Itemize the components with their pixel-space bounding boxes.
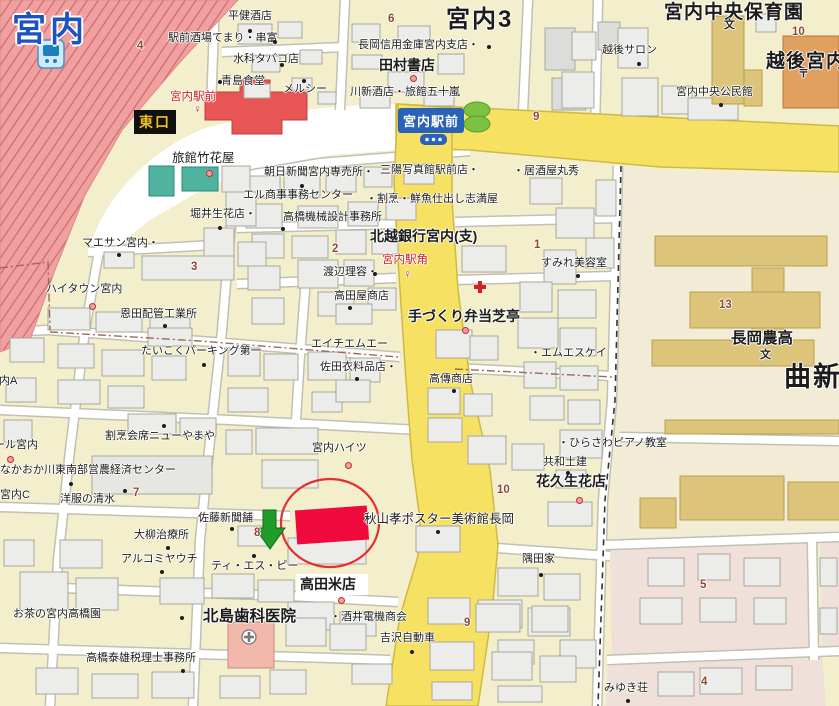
poi-dot [373,272,377,276]
map-label: 高橋機械設計事務所 [283,212,382,223]
map-label: 割烹会席ニューやまや [105,431,215,442]
map-label: ・ひらさわピアノ教室 [558,438,667,449]
poi-dot [566,471,570,475]
road-number: 9 [464,618,470,630]
map-label: 洋服の清水 [60,494,115,505]
map-label: 宮内A [0,376,17,387]
road-number: 6 [388,14,394,26]
intersection-label: 宮内駅前 [398,108,464,133]
map-label: 青島食堂 [221,76,265,87]
map-label: エル商事事務センター [243,190,353,201]
poi-red-marker [89,303,96,310]
map-label: 高橋泰雄税理士事務所 [86,653,196,664]
map-label: 佐藤新聞舗 [198,513,253,524]
map-label: 高傳商店 [429,374,473,385]
map-label: 北越銀行宮内(支) [370,229,477,243]
road-number: 1 [534,240,540,252]
poi-dot [300,184,304,188]
poi-dot [123,489,127,493]
poi-red-marker [206,170,213,177]
map-label: 恩田配管工業所 [120,309,197,320]
poi-dot [637,62,641,66]
bus-stop-icon: ♀ [193,103,202,115]
poi-red-marker [410,75,417,82]
road-number: 7 [133,488,139,500]
map-label: みゆき荘 [604,683,648,694]
map-label: 越後サロン [602,45,657,56]
poi-dot [181,669,185,673]
map-label: メルシー [283,84,327,95]
road-number: 4 [701,677,707,689]
poi-red-marker [576,497,583,504]
map-label: 水科タバコ店 [233,54,299,65]
poi-dot [69,482,73,486]
bus-stop-label: 宮内駅角 [382,255,428,267]
post-office-icon: 〒 [798,69,809,80]
poi-red-marker [7,456,14,463]
map-label: ティ・エス・ピー [211,561,298,572]
map-label: ・割烹・鮮魚仕出し志満屋 [366,194,498,205]
poi-dot [180,616,184,620]
map-label: 隅田家 [522,554,555,565]
road-number: 2 [332,244,338,256]
map-label: 宮内中央公民館 [676,87,753,98]
poi-dot [355,377,359,381]
poi-dot [218,80,222,84]
poi-red-marker [345,462,352,469]
map-label: 堀井生花店・ [190,209,256,220]
poi-dot [487,45,491,49]
map-label: 長岡信用金庫宮内支店・ [358,40,479,51]
map-label: 朝日新聞宮内専売所・ [264,167,374,178]
map-label: すみれ美容室 [541,258,607,269]
map-label: 佐田衣料品店・ [320,362,397,373]
map-label: 共和土建 [543,457,587,468]
poi-dot [302,79,306,83]
road-number: 5 [700,580,706,592]
bus-stop-icon: ♀ [403,268,412,280]
map-labels-layer: 平健酒店駅前酒場てまり・串富水科タバコ店青島食堂メルシー長岡信用金庫宮内支店・田… [0,0,839,706]
poi-dot [273,40,277,44]
map-label: 渡辺理容・ [323,267,378,278]
road-number: 13 [719,300,732,312]
map-label: 大柳治療所 [134,530,189,541]
poi-dot [719,103,723,107]
road-number: 4 [137,41,143,53]
map-label: 手づくり弁当芝亭 [408,309,520,323]
poi-dot [230,527,234,531]
map-canvas[interactable]: 宮内 東口 宮内駅前 平健酒店駅前酒場てまり・串富水科タバコ店青島食堂メルシー長… [0,0,839,706]
map-label: 宮内C [0,490,30,501]
map-label: お茶の宮内高橋園 [13,609,101,620]
poi-dot [626,699,630,703]
poi-dot [280,63,284,67]
map-label: 宮内ハイツ [312,443,367,454]
road-number: 9 [533,112,539,124]
map-label: 田村書店 [379,58,435,72]
road-number: 10 [497,485,510,497]
poi-dot [281,227,285,231]
map-label: ・居酒屋丸秀 [513,166,579,177]
road-number: 10 [792,27,805,39]
poi-red-marker [338,597,345,604]
map-label: 川新酒店・旅館五十嵐 [350,87,460,98]
map-label: ・酒井電機商会 [330,612,407,623]
map-label: 曲新 [784,364,839,391]
map-label: ハイタウン宮内 [46,284,122,295]
poi-dot [162,424,166,428]
map-label: 旅館竹花屋 [172,152,235,165]
poi-dot [202,363,206,367]
map-label: 長岡農高 [731,331,793,347]
poi-dot [252,554,256,558]
map-label: 北島歯科医院 [203,609,296,625]
poi-dot [218,226,222,230]
map-label: アルコミヤウチ [121,554,198,565]
poi-red-marker [462,327,469,334]
map-label: 三陽写真館駅前店・ [380,165,479,176]
poi-dot [117,253,121,257]
map-label: ・エムエスケイ [530,348,607,359]
poi-dot [436,530,440,534]
poi-dot [576,274,580,278]
poi-dot [410,650,414,654]
map-label: 平健酒店 [228,11,272,22]
map-label: 高田米店 [300,577,356,591]
school-icon: 文 [760,350,771,361]
poi-dot [248,29,252,33]
map-label: マエサン宮内・ [82,238,159,249]
poi-dot [160,570,164,574]
poi-dot [539,573,543,577]
map-label: 宮内3 [446,8,513,32]
school-icon: 文 [724,20,735,31]
road-number: 3 [191,262,197,274]
poi-dot [163,324,167,328]
map-label: 駅前酒場てまり・串富 [168,33,277,44]
poi-dot [452,389,456,393]
map-label: ール宮内 [0,440,38,451]
poi-dot [348,306,352,310]
map-label: なかおか川東南部営農経済センター [0,465,176,476]
road-number: 8 [254,528,260,540]
map-label: 花久生花店 [536,474,606,488]
map-label: エイチエムエー [311,339,388,350]
map-label: たいこくパーキング第一 [141,346,262,357]
map-label: 秋山孝ポスター美術館長岡 [364,513,514,526]
map-label: 高田屋商店 [334,291,389,302]
poi-dot [166,546,170,550]
map-label: 吉沢自動車 [380,633,435,644]
